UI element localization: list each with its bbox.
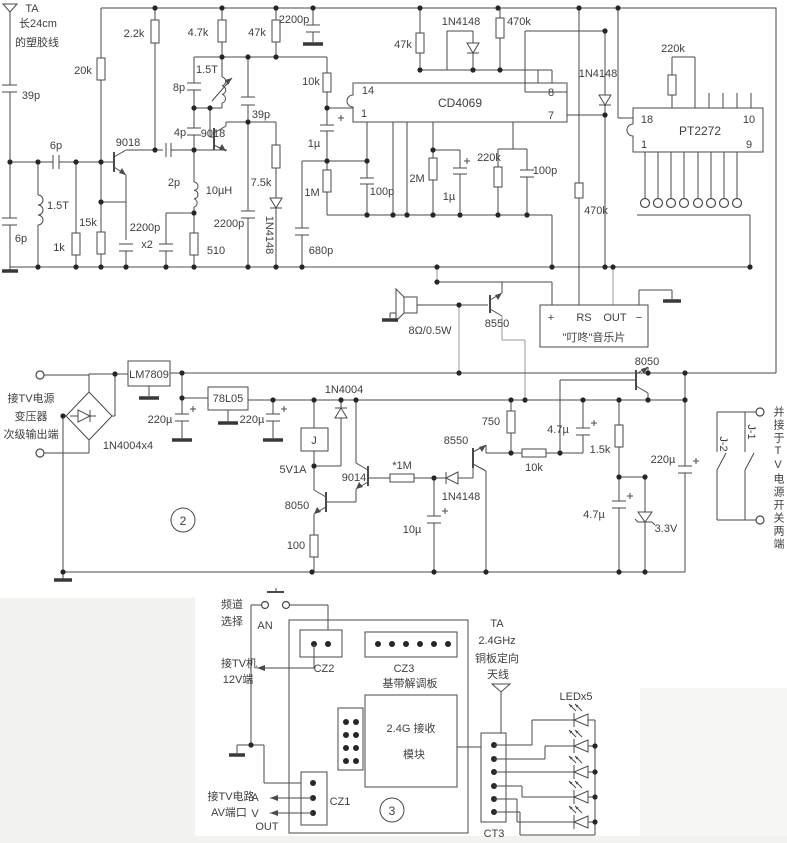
- label-220u-3: 220µ: [651, 454, 676, 466]
- rf-module-box: [365, 695, 457, 787]
- label-4.7k: 4.7k: [188, 27, 209, 39]
- section-3-receiver-board: 频道 选择 AN CZ2 CZ3 基带解调板 接TV机 12V端 TA 2.4G…: [207, 588, 597, 840]
- label-music-out: OUT: [603, 312, 627, 324]
- label-6p: 6p: [50, 140, 62, 152]
- label-copper-antenna: 铜板定向: [475, 651, 519, 665]
- button-terminal-2: [283, 602, 290, 609]
- label-220k-2: 220k: [661, 43, 685, 55]
- schematic-page: TA 长24cm 的塑胶线 39p 6p 1.5T 6p 1k 15k 20k …: [0, 0, 787, 843]
- label-47k: 47k: [248, 27, 266, 39]
- label-j1: J-1: [745, 424, 757, 439]
- button-terminal: [262, 602, 269, 609]
- label-star-1m: *1M: [392, 460, 412, 472]
- label-music-chip: "叮咚"音乐片: [563, 330, 626, 344]
- cz2-connector: [300, 630, 342, 657]
- label-pin14: 14: [362, 85, 374, 97]
- label-speaker: 8Ω/0.5W: [408, 325, 452, 337]
- label-1u-2: 1µ: [443, 191, 456, 203]
- label-1n4148-2: 1N4148: [442, 16, 481, 28]
- label-q1-9018: 9018: [116, 137, 140, 149]
- label-antenna-len: 长24cm: [19, 17, 57, 30]
- label-pin1: 1: [361, 108, 367, 120]
- label-1n4148-4: 1N4148: [442, 491, 481, 503]
- label-antenna-wire: 的塑胶线: [15, 35, 59, 49]
- label-100: 100: [287, 540, 305, 552]
- label-pin18: 18: [641, 114, 653, 126]
- label-2.4ghz: 2.4GHz: [478, 635, 515, 647]
- label-1u: 1µ: [308, 138, 321, 150]
- label-pt2272: PT2272: [679, 124, 721, 138]
- label-39p-2: 39p: [252, 109, 270, 121]
- label-q2-9018: 9018: [201, 128, 225, 140]
- label-2M: 2M: [409, 173, 424, 185]
- label-channel-2: 选择: [221, 614, 243, 628]
- label-cz2: CZ2: [314, 663, 335, 675]
- label-rf-module-1: 2.4G 接收: [387, 721, 436, 735]
- label-1.5T: 1.5T: [47, 200, 69, 212]
- label-cz3: CZ3: [394, 663, 415, 675]
- label-470k-2: 470k: [584, 205, 608, 217]
- circuit-schematic: TA 长24cm 的塑胶线 39p 6p 1.5T 6p 1k 15k 20k …: [0, 0, 787, 843]
- label-39p: 39p: [22, 90, 40, 102]
- label-2200p-top: 2200p: [279, 14, 310, 26]
- label-47k-2: 47k: [394, 39, 412, 51]
- label-3.3v: 3.3V: [655, 523, 678, 535]
- label-baseband-board: 基带解调板: [383, 676, 438, 690]
- label-1n4148-3: 1N4148: [579, 68, 618, 80]
- label-6p-2: 6p: [15, 233, 27, 245]
- label-2p: 2p: [168, 177, 180, 189]
- led-icon: [569, 730, 588, 753]
- label-pin7: 7: [548, 110, 554, 122]
- label-q4-8050: 8050: [635, 356, 659, 368]
- label-circle-3: 3: [389, 804, 396, 818]
- label-a-out: A: [251, 792, 259, 804]
- label-4.7u-2: 4.7µ: [583, 509, 605, 521]
- label-10uH: 10µH: [206, 185, 233, 197]
- label-220u: 220µ: [148, 414, 173, 426]
- label-pin10: 10: [743, 114, 755, 126]
- label-4.7u: 4.7µ: [547, 424, 569, 436]
- label-220k: 220k: [477, 152, 501, 164]
- label-1n4148-vert: 1N4148: [263, 216, 275, 255]
- label-4p: 4p: [174, 127, 186, 139]
- label-1.5T-var: 1.5T: [196, 64, 218, 76]
- label-2200p-2: 2200p: [214, 218, 245, 230]
- label-out: OUT: [255, 821, 279, 833]
- label-2.2k: 2.2k: [124, 28, 145, 40]
- background-tint-left: [0, 598, 195, 843]
- label-78l05: 78L05: [213, 393, 244, 405]
- label-music-minus: −: [636, 312, 642, 324]
- label-20k: 20k: [74, 65, 92, 77]
- background-tint-right: [640, 688, 787, 836]
- label-rf-module-2: 模块: [403, 748, 425, 761]
- label-q7-8550: 8550: [444, 435, 468, 447]
- label-channel-1: 频道: [221, 597, 243, 611]
- led-icon: [569, 781, 588, 804]
- label-pt-pin1: 1: [641, 139, 647, 151]
- label-av-port-1: 接TV电路: [207, 790, 254, 803]
- label-q3-8550: 8550: [485, 318, 509, 330]
- label-ct3: CT3: [484, 828, 505, 840]
- label-tv-power-2: 变压器: [15, 409, 48, 423]
- label-cz1: CZ1: [330, 796, 351, 808]
- label-tv-12v-1: 接TV机: [221, 656, 257, 670]
- label-470k: 470k: [507, 16, 531, 28]
- label-parallel-to-tv-switch: 并接于TV电源开关两端: [764, 406, 786, 626]
- label-cd4069: CD4069: [438, 96, 482, 110]
- address-jumper-pads: [641, 199, 742, 208]
- label-680p: 680p: [309, 245, 333, 257]
- label-bridge: 1N4004x4: [103, 440, 153, 452]
- label-pin8: 8: [548, 87, 554, 99]
- label-pin9: 9: [746, 139, 752, 151]
- label-10k: 10k: [302, 76, 320, 88]
- section-2-power-supply: 接TV电源 变压器 次级输出端 1N4004x4 LM7809 220µ 78L…: [4, 361, 777, 580]
- section-1-rf-circuit: TA 长24cm 的塑胶线 39p 6p 1.5T 6p 1k 15k 20k …: [2, 3, 776, 453]
- label-2200p: 2200p: [130, 222, 161, 234]
- label-lm7809: LM7809: [129, 369, 169, 381]
- label-relay-j: J: [311, 435, 317, 447]
- label-10k-2: 10k: [525, 462, 543, 474]
- led-icon: [569, 704, 588, 727]
- label-1k: 1k: [53, 242, 65, 254]
- speaker-icon: [404, 297, 417, 313]
- label-1n4004: 1N4004: [325, 384, 364, 396]
- label-an-button: AN: [257, 620, 272, 632]
- label-antenna: TA: [25, 3, 39, 15]
- module-connector: [338, 708, 363, 770]
- label-antenna-cn: 天线: [487, 667, 509, 681]
- junction-dots: [7, 5, 752, 307]
- label-tv-power-1: 接TV电源: [7, 391, 54, 405]
- label-x2: x2: [141, 239, 153, 251]
- label-10u: 10µ: [403, 524, 422, 536]
- label-1M: 1M: [304, 187, 319, 199]
- label-510: 510: [207, 245, 225, 257]
- label-1.5k: 1.5k: [590, 444, 611, 456]
- led-icon: [569, 806, 588, 829]
- label-220u-2: 220µ: [240, 414, 265, 426]
- label-tv-12v-2: 12V端: [223, 673, 254, 686]
- background-tint-bottom: [0, 836, 787, 843]
- label-av-port-2: AV端口: [211, 806, 247, 819]
- label-7.5k: 7.5k: [251, 177, 272, 189]
- label-100p: 100p: [370, 186, 394, 198]
- label-750: 750: [482, 416, 500, 428]
- label-music-plus: +: [548, 312, 554, 324]
- led-icon: [569, 756, 588, 779]
- label-j2: J-2: [717, 436, 729, 451]
- label-music-rs: RS: [576, 312, 591, 324]
- label-q6-8050: 8050: [285, 500, 309, 512]
- label-circle-2: 2: [180, 514, 187, 528]
- label-5v1a: 5V1A: [280, 464, 308, 476]
- junction-dots-2: [60, 370, 687, 574]
- label-q5-9014: 9014: [342, 472, 366, 484]
- label-tv-power-3: 次级输出端: [4, 427, 59, 441]
- label-ledx5: LEDx5: [559, 691, 592, 703]
- label-8p: 8p: [173, 82, 185, 94]
- label-100p-2: 100p: [533, 165, 557, 177]
- label-rx-antenna-ta: TA: [490, 618, 504, 630]
- label-15k: 15k: [79, 217, 97, 229]
- label-v-out: V: [251, 808, 259, 820]
